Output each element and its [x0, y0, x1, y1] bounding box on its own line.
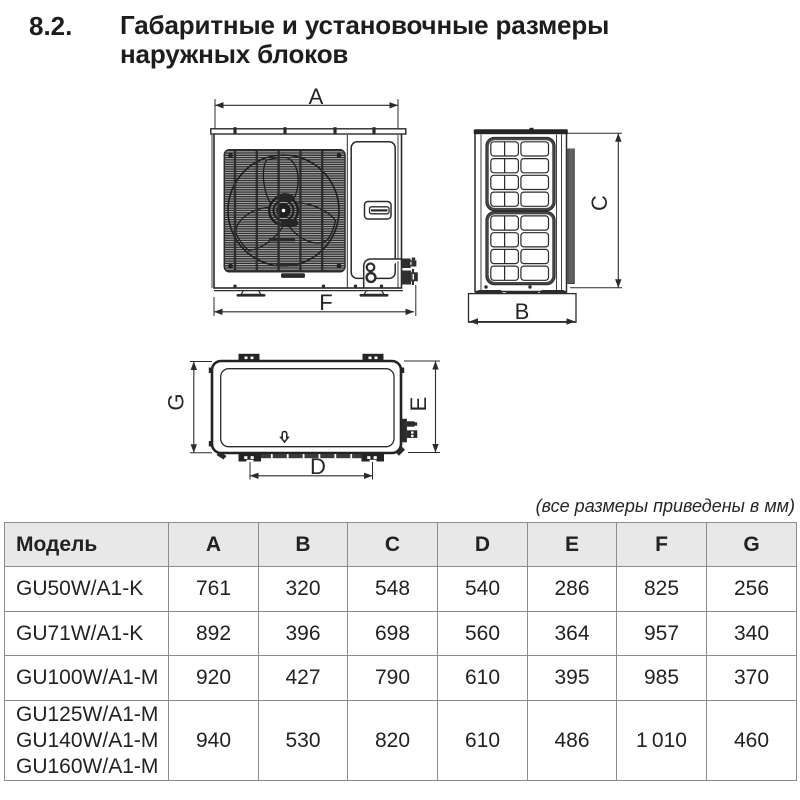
svg-text:E: E	[406, 397, 431, 412]
svg-text:B: B	[515, 299, 530, 324]
svg-text:A: A	[309, 84, 324, 109]
svg-text:D: D	[310, 454, 326, 479]
svg-text:F: F	[319, 290, 332, 315]
svg-text:C: C	[587, 195, 612, 211]
svg-text:G: G	[164, 393, 189, 410]
